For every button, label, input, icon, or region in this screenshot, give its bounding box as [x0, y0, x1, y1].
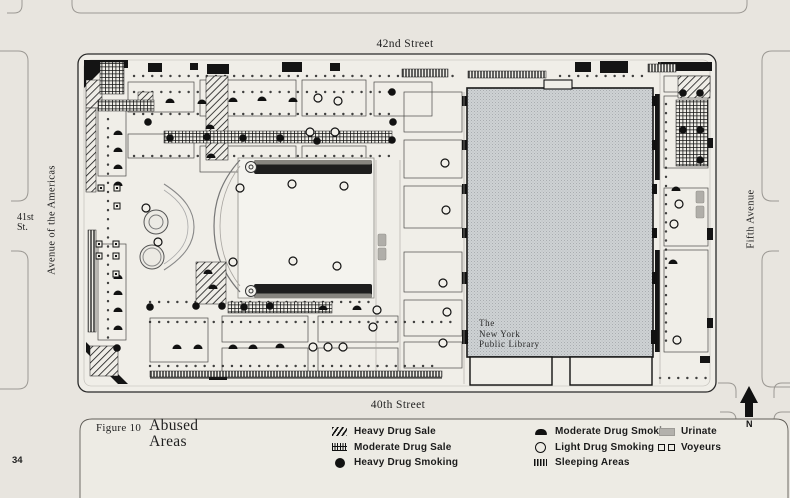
marker-light_smoke: [439, 279, 447, 287]
marker-heavy_smoke: [313, 137, 321, 145]
legend-item-voyeurs: Voyeurs: [657, 440, 721, 456]
marker-light_smoke: [369, 323, 377, 331]
marker-heavy_smoke: [679, 126, 687, 134]
marker-urinate: [378, 234, 386, 246]
open-circle-icon: [535, 442, 546, 453]
legend-column-3: Urinate Voyeurs: [657, 424, 721, 455]
marker-light_smoke: [334, 97, 342, 105]
north-label: N: [746, 419, 753, 429]
marker-heavy_smoke: [192, 302, 200, 310]
library-wing-east: [570, 357, 652, 385]
street-label-41st: 41st St.: [17, 213, 34, 233]
marker-light_smoke: [339, 343, 347, 351]
area-sale_heavy: [196, 262, 226, 304]
street-label-40th: 40th Street: [298, 399, 498, 411]
legend-item-heavy-drug-sale: Heavy Drug Sale: [330, 424, 458, 440]
marker-heavy_smoke: [388, 88, 396, 96]
legend-column-1: Heavy Drug Sale Moderate Drug Sale Heavy…: [330, 424, 458, 471]
marker-heavy_smoke: [276, 134, 284, 142]
map-legend: Heavy Drug Sale Moderate Drug Sale Heavy…: [330, 424, 790, 480]
marker-heavy_smoke: [113, 344, 121, 352]
filled-dome-icon: [535, 429, 547, 435]
marker-light_smoke: [670, 220, 678, 228]
marker-heavy_smoke: [389, 118, 397, 126]
avenue-label-americas: Avenue of the Americas: [47, 165, 58, 275]
area-sleep: [88, 230, 96, 332]
marker-light_smoke: [675, 200, 683, 208]
marker-voyeur: [113, 253, 119, 259]
library-label: The New York Public Library: [479, 318, 540, 350]
filled-circle-icon: [335, 458, 345, 468]
lawn-hedge-south: [246, 284, 373, 298]
marker-light_smoke: [288, 180, 296, 188]
marker-heavy_smoke: [240, 303, 248, 311]
marker-heavy_smoke: [696, 126, 704, 134]
marker-urinate: [378, 248, 386, 260]
area-sleep: [648, 64, 676, 72]
marker-urinate: [696, 206, 704, 218]
marker-light_smoke: [442, 206, 450, 214]
legend-item-heavy-drug-smoking: Heavy Drug Smoking: [330, 455, 458, 471]
marker-light_smoke: [314, 94, 322, 102]
marker-light_smoke: [154, 238, 162, 246]
marker-heavy_smoke: [166, 134, 174, 142]
area-sale_heavy: [90, 346, 118, 376]
library-wing-west: [470, 357, 552, 385]
scanned-page: 42nd Street 40th Street Avenue of the Am…: [0, 0, 790, 498]
legend-item-light-drug-smoking: Light Drug Smoking: [531, 440, 675, 456]
marker-heavy_smoke: [696, 89, 704, 97]
area-sale_heavy: [206, 76, 228, 160]
marker-voyeur: [113, 271, 119, 277]
marker-heavy_smoke: [239, 134, 247, 142]
marker-light_smoke: [340, 182, 348, 190]
figure-title: Abused Areas: [149, 418, 198, 450]
area-sleep: [468, 71, 546, 78]
area-sleep: [150, 371, 442, 377]
area-sale_mod: [98, 100, 154, 111]
crosshatch-icon: [332, 443, 347, 451]
legend-item-moderate-drug-sale: Moderate Drug Sale: [330, 440, 458, 456]
street-label-42nd: 42nd Street: [305, 38, 505, 50]
marker-voyeur: [96, 241, 102, 247]
marker-voyeur: [96, 253, 102, 259]
marker-light_smoke: [443, 308, 451, 316]
legend-item-moderate-drug-smoking: Moderate Drug Smoking: [531, 424, 675, 440]
legend-item-urinate: Urinate: [657, 424, 721, 440]
lawn-hedge-north: [246, 160, 373, 174]
marker-light_smoke: [289, 257, 297, 265]
marker-light_smoke: [331, 128, 339, 136]
marker-light_smoke: [229, 258, 237, 266]
marker-light_smoke: [673, 336, 681, 344]
marker-light_smoke: [142, 204, 150, 212]
figure-number: Figure 10: [96, 422, 141, 434]
marker-heavy_smoke: [146, 303, 154, 311]
marker-heavy_smoke: [266, 302, 274, 310]
legend-column-2: Moderate Drug Smoking Light Drug Smoking…: [531, 424, 675, 471]
legend-item-sleeping-areas: Sleeping Areas: [531, 455, 675, 471]
north-arrow-icon: [740, 386, 758, 417]
marker-voyeur: [98, 185, 104, 191]
area-sale_heavy: [86, 108, 96, 192]
marker-light_smoke: [309, 343, 317, 351]
marker-urinate: [696, 191, 704, 203]
ladder-hatch-icon: [534, 459, 547, 466]
marker-light_smoke: [324, 343, 332, 351]
area-sale_mod: [100, 62, 124, 94]
marker-light_smoke: [441, 159, 449, 167]
marker-light_smoke: [236, 184, 244, 192]
marker-voyeur: [113, 241, 119, 247]
marker-heavy_smoke: [388, 136, 396, 144]
marker-heavy_smoke: [144, 118, 152, 126]
page-number: 34: [12, 455, 23, 466]
marker-heavy_smoke: [203, 133, 211, 141]
marker-light_smoke: [373, 306, 381, 314]
marker-heavy_smoke: [679, 89, 687, 97]
open-squares-icon: [658, 444, 675, 451]
figure-caption: Figure 10 Abused Areas: [96, 418, 198, 450]
diagonal-hatch-icon: [332, 427, 347, 436]
gray-block-icon: [659, 428, 675, 436]
marker-heavy_smoke: [218, 302, 226, 310]
marker-voyeur: [114, 203, 120, 209]
avenue-label-fifth: Fifth Avenue: [746, 189, 757, 248]
marker-light_smoke: [439, 339, 447, 347]
marker-light_smoke: [306, 128, 314, 136]
area-sleep: [402, 69, 448, 77]
marker-heavy_smoke: [696, 156, 704, 164]
marker-voyeur: [114, 185, 120, 191]
marker-light_smoke: [333, 262, 341, 270]
